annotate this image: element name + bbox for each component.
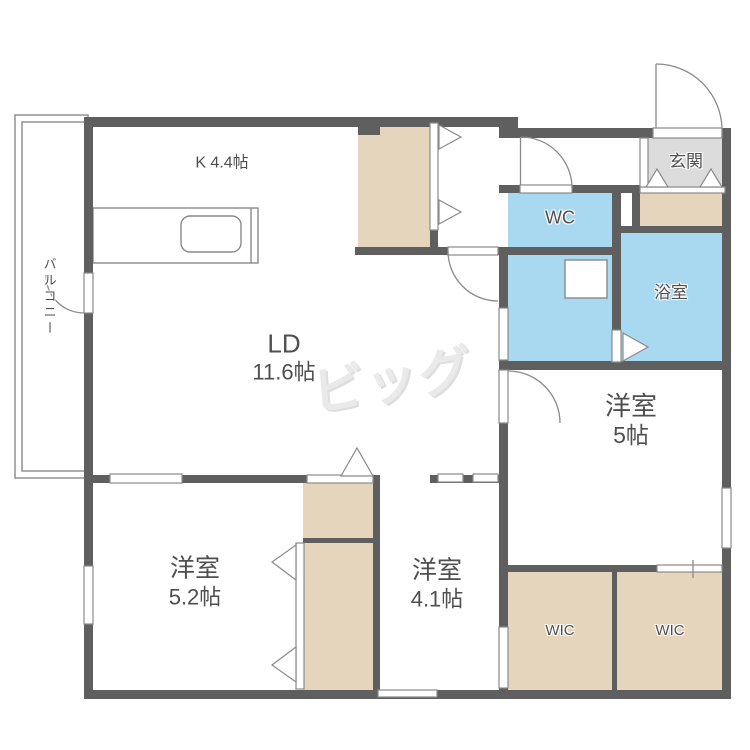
bedroom52-name: 洋室 — [169, 554, 222, 584]
bath-door-opening — [612, 330, 621, 362]
wic-right-label: WIC — [655, 622, 684, 640]
kitchen-label: K 4.4帖 — [195, 155, 248, 174]
wall-bedroom5-wic — [499, 565, 657, 572]
bedroom5-size: 5帖 — [605, 422, 657, 449]
closet-lower-door — [296, 543, 304, 689]
hall-door-opening — [448, 247, 498, 255]
bedroom5-name: 洋室 — [605, 391, 657, 422]
balcony-door-leaf — [84, 273, 93, 313]
window-bedroom41-bottom — [378, 690, 437, 697]
wic-left-opening — [499, 627, 508, 688]
sliding-door-bedroom52 — [110, 474, 182, 483]
shoe-cabinet — [640, 193, 722, 226]
wall-wc-top-right — [572, 185, 640, 193]
wall-bath-top — [612, 226, 722, 233]
living-dining-size: 11.6帖 — [252, 359, 315, 385]
living-dining-name: LD — [252, 329, 315, 360]
wc-door-opening — [520, 185, 572, 193]
wall-closet-divider — [303, 538, 373, 543]
bedroom41-label: 洋室 4.1帖 — [411, 556, 464, 611]
wall-wc-washroom — [508, 247, 612, 255]
wc-label: WC — [545, 207, 575, 228]
bedroom41-size: 4.1帖 — [411, 586, 464, 612]
bedroom52-size: 5.2帖 — [169, 584, 222, 610]
wall-right-lower — [722, 548, 731, 699]
wall-wc-top-left — [499, 185, 520, 193]
wall-ld-east-upper — [499, 255, 508, 308]
wall-left-lower — [84, 624, 93, 690]
sliding-door-bedroom41-panel1 — [438, 474, 463, 482]
closet-lower-fold-triangle-1 — [272, 545, 296, 580]
kitchen-sink — [181, 216, 241, 252]
entrance-door-sill — [653, 128, 722, 138]
closet-lower — [303, 543, 373, 690]
bedroom41-name: 洋室 — [411, 556, 464, 586]
wall-center-stub — [499, 688, 508, 699]
bedroom5-door-arc — [508, 371, 560, 423]
wall-wic-divider — [612, 572, 617, 692]
closet-upper-fold-triangle — [341, 448, 373, 476]
wall-closet-block — [430, 230, 438, 248]
entrance-label: 玄関 — [669, 152, 703, 172]
sliding-door-bedroom41-panel2 — [473, 474, 498, 482]
hall-closet-fold-triangle-1 — [439, 125, 461, 149]
hall-closet-door — [430, 123, 438, 230]
hall-closet-fold-triangle-2 — [439, 200, 461, 224]
window-bedroom52-left — [84, 566, 93, 624]
closet-lower-fold-triangle-2 — [272, 647, 296, 682]
bedroom5-door-opening — [499, 370, 508, 423]
wic-right-sliding-door — [657, 565, 722, 572]
wall-right-upper — [722, 128, 731, 488]
bedroom52-label: 洋室 5.2帖 — [169, 554, 222, 609]
entrance-step-strip — [640, 187, 725, 193]
bedroom5-label: 洋室 5帖 — [605, 391, 657, 449]
wall-closet-notch — [358, 117, 380, 135]
floorplan: ビッグ K 4.4帖 LD 11.6帖 洋室 5帖 洋室 5.2帖 洋室 4.1… — [0, 0, 750, 750]
closet-upper — [303, 482, 373, 538]
washbasin — [565, 260, 607, 298]
wic-left-label: WIC — [545, 622, 574, 640]
entrance-side-strip — [640, 138, 648, 187]
balcony-label: バルコニー — [41, 257, 56, 337]
hall-door-arc — [448, 251, 498, 301]
hall-closet — [358, 127, 430, 248]
window-bedroom5-right — [722, 488, 731, 548]
wc-door-arc — [521, 137, 572, 188]
entrance-door-arc — [656, 64, 722, 130]
wall-center-vertical — [499, 423, 508, 627]
wall-left-middle — [84, 313, 93, 566]
wall-closet-column-right — [373, 475, 380, 690]
bathroom-label: 浴室 — [654, 283, 688, 303]
wall-hall-door-jamb — [498, 247, 508, 255]
wall-left-upper — [84, 117, 93, 273]
washroom-sliding-door — [499, 308, 508, 360]
wall-bath-washroom — [612, 233, 621, 330]
living-dining-label: LD 11.6帖 — [252, 329, 315, 386]
wall-below-closet — [355, 247, 448, 255]
